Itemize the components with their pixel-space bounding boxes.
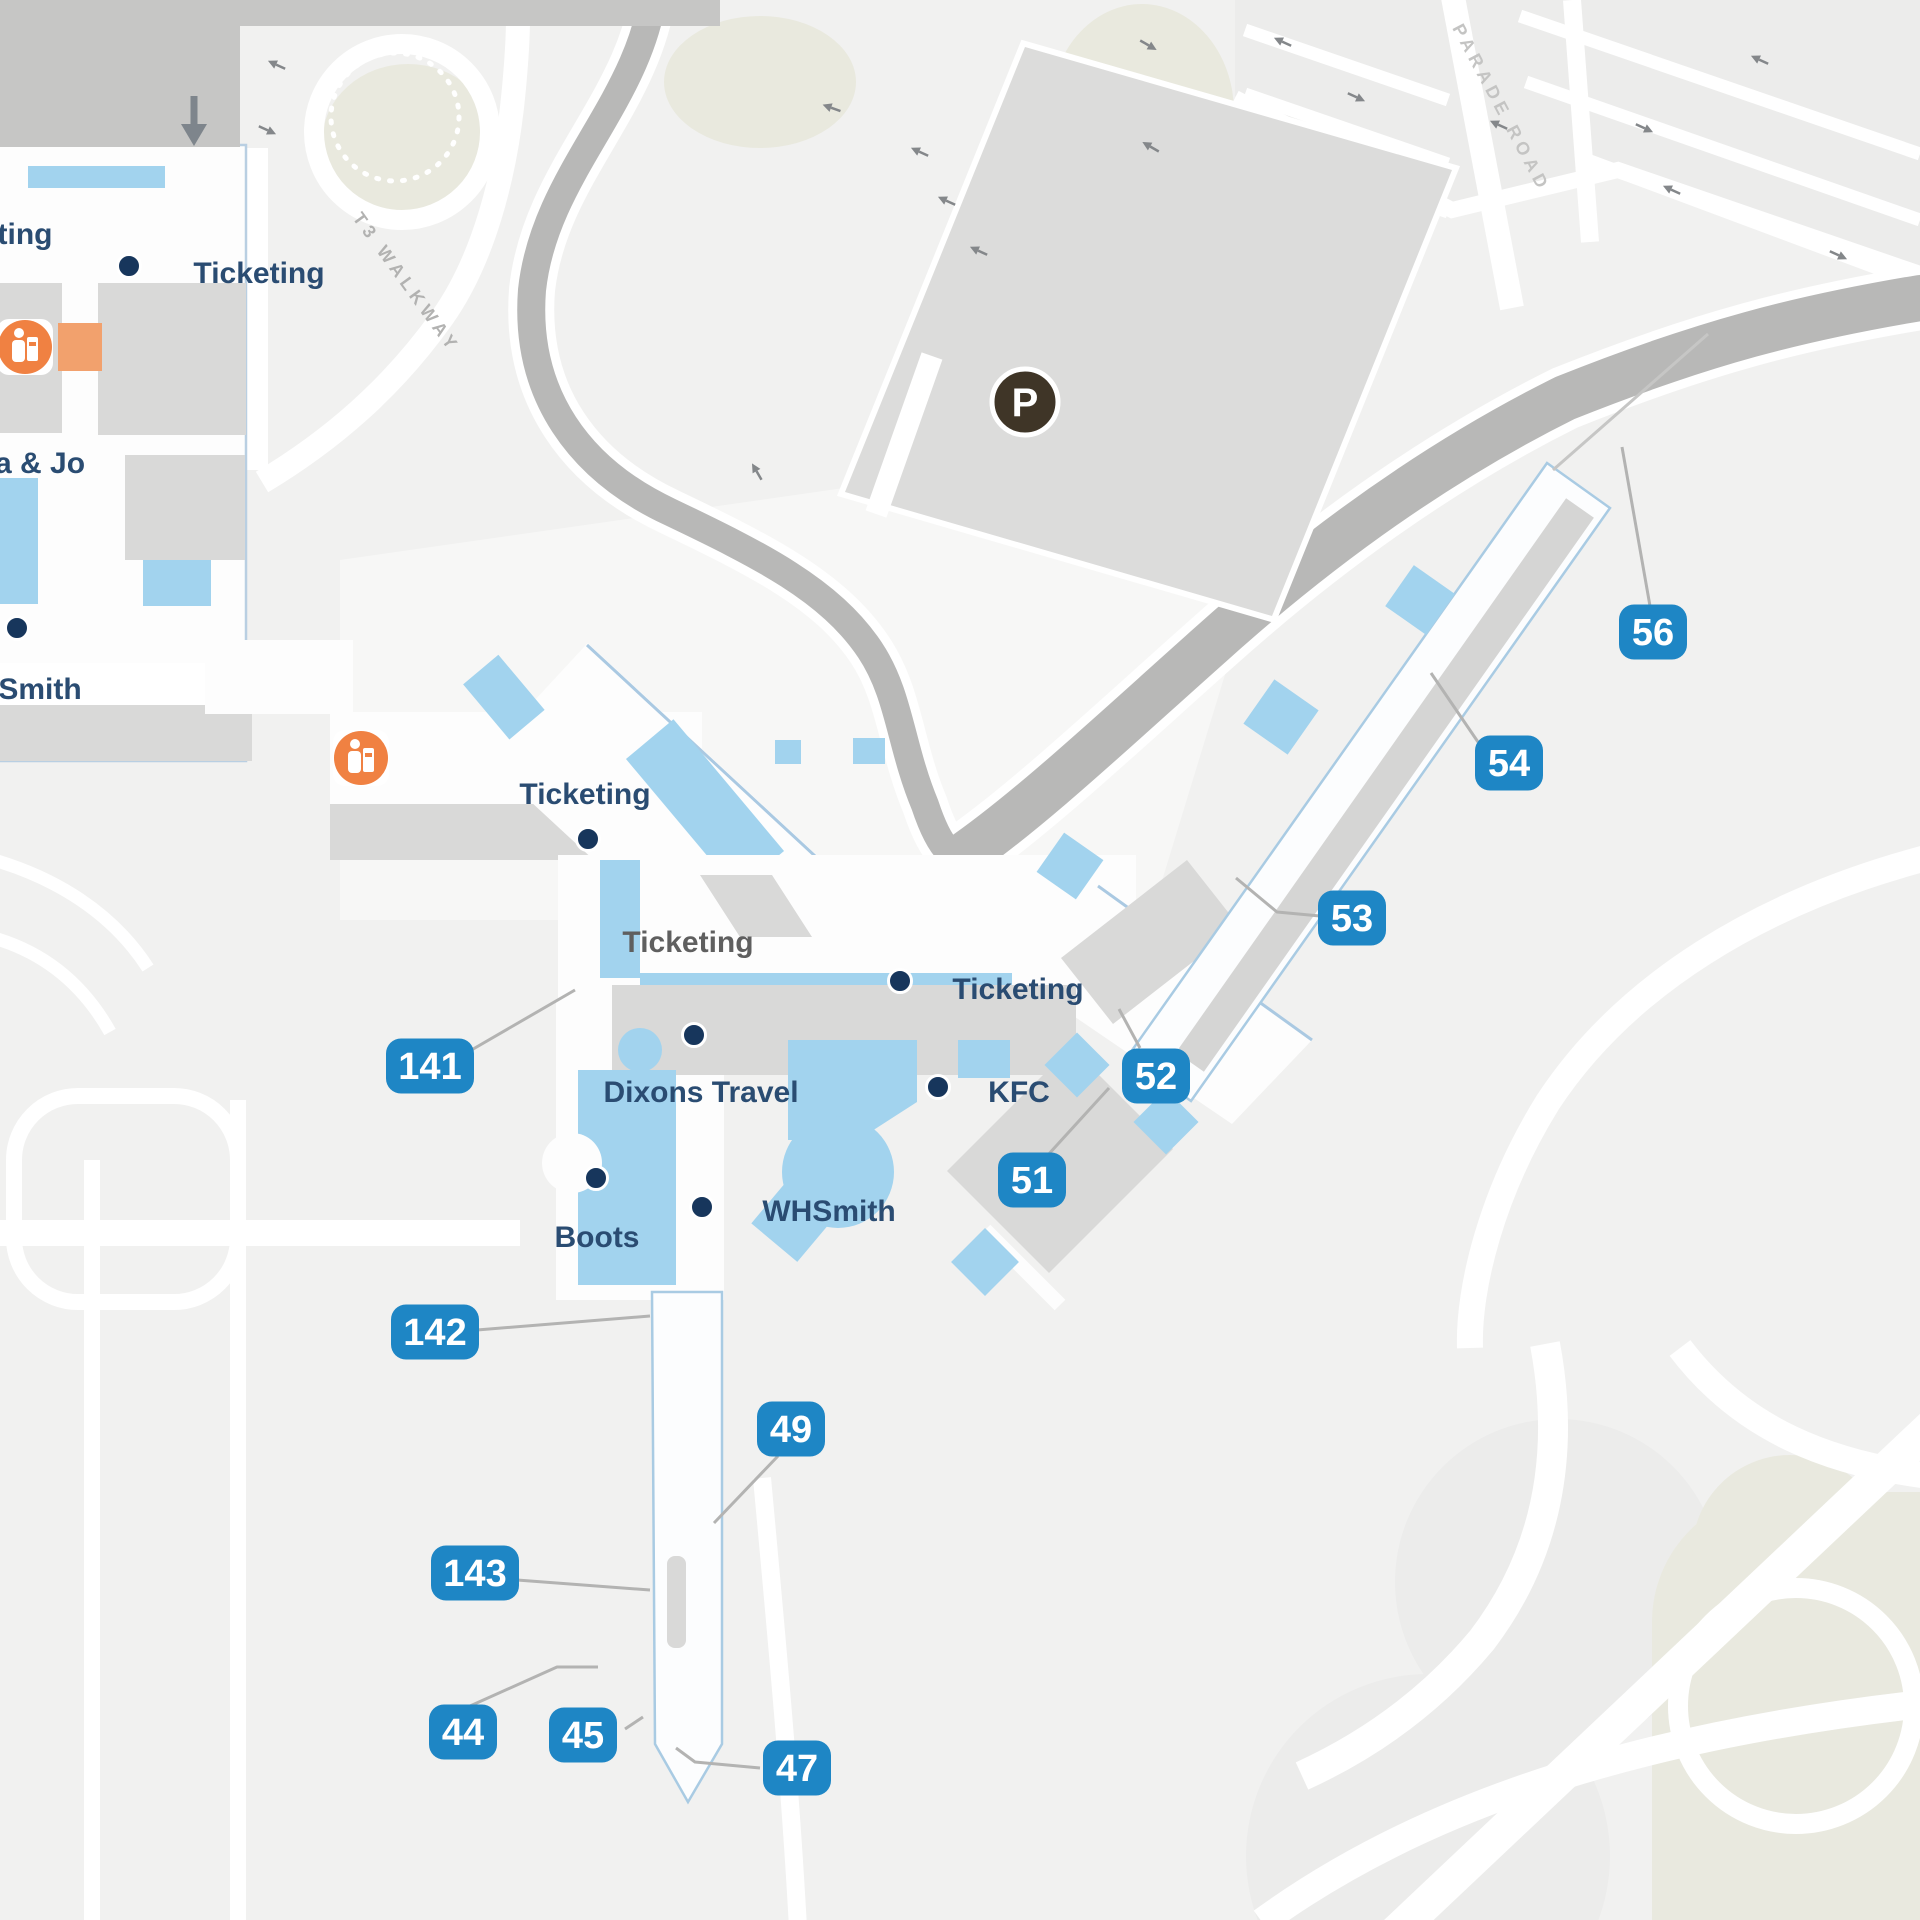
gate-badge-44[interactable]: 44 (429, 1705, 497, 1760)
gate-badge-label: 44 (442, 1712, 484, 1754)
parking-icon[interactable]: P (992, 369, 1058, 435)
gate-badge-54[interactable]: 54 (1475, 736, 1543, 791)
gate-badge-label: 51 (1011, 1160, 1053, 1202)
gate-badge-label: 52 (1135, 1056, 1177, 1098)
orange-zone (58, 323, 102, 371)
airport-map: T3 WALKWAYPARADE ROAD tingTicketinga & J… (0, 0, 1920, 1920)
gate-badge-143[interactable]: 143 (431, 1546, 519, 1601)
gate-badge-label: 54 (1488, 743, 1530, 785)
poi-dot[interactable] (691, 1196, 714, 1219)
poi-label-ting[interactable]: ting (0, 218, 52, 251)
poi-label-whsmith[interactable]: WHSmith (762, 1195, 895, 1228)
gate-badge-label: 141 (398, 1046, 461, 1088)
gate-badge-label: 53 (1331, 898, 1373, 940)
poi-dot[interactable] (927, 1076, 950, 1099)
poi-dot[interactable] (6, 617, 29, 640)
poi-label-ticketing[interactable]: Ticketing (952, 973, 1083, 1006)
gate-badge-141[interactable]: 141 (386, 1039, 474, 1094)
gate-badge-53[interactable]: 53 (1318, 891, 1386, 946)
gate-badge-label: 143 (443, 1553, 506, 1595)
south-pier (652, 1292, 722, 1802)
poi-label-ticketing[interactable]: Ticketing (193, 257, 324, 290)
poi-dot[interactable] (683, 1024, 706, 1047)
security-check-icon[interactable] (0, 319, 53, 375)
poi-label-kfc[interactable]: KFC (988, 1076, 1050, 1109)
gate-badge-label: 47 (776, 1748, 818, 1790)
gate-badge-51[interactable]: 51 (998, 1153, 1066, 1208)
poi-dot[interactable] (118, 255, 141, 278)
gate-badge-52[interactable]: 52 (1122, 1049, 1190, 1104)
security-check-icon[interactable] (333, 730, 389, 786)
poi-dot[interactable] (577, 828, 600, 851)
airport-map-stage: T3 WALKWAYPARADE ROAD tingTicketinga & J… (0, 0, 1920, 1920)
gate-badge-label: 49 (770, 1409, 812, 1451)
poi-label-dixons-travel[interactable]: Dixons Travel (603, 1076, 798, 1109)
poi-dot[interactable] (889, 970, 912, 993)
gate-badge-142[interactable]: 142 (391, 1305, 479, 1360)
poi-label-smith[interactable]: Smith (0, 673, 82, 706)
poi-label-ticketing[interactable]: Ticketing (519, 778, 650, 811)
gate-badge-label: 56 (1632, 612, 1674, 654)
poi-label-a-jo[interactable]: a & Jo (0, 447, 85, 480)
gate-badge-45[interactable]: 45 (549, 1708, 617, 1763)
gate-badge-49[interactable]: 49 (757, 1402, 825, 1457)
gate-badge-56[interactable]: 56 (1619, 605, 1687, 660)
poi-label-boots[interactable]: Boots (555, 1221, 640, 1254)
parking-glyph: P (1012, 381, 1039, 425)
poi-label-ticketing[interactable]: Ticketing (622, 926, 753, 959)
gate-badge-47[interactable]: 47 (763, 1741, 831, 1796)
gate-badge-label: 45 (562, 1715, 604, 1757)
gate-badge-label: 142 (403, 1312, 466, 1354)
poi-dot[interactable] (585, 1167, 608, 1190)
